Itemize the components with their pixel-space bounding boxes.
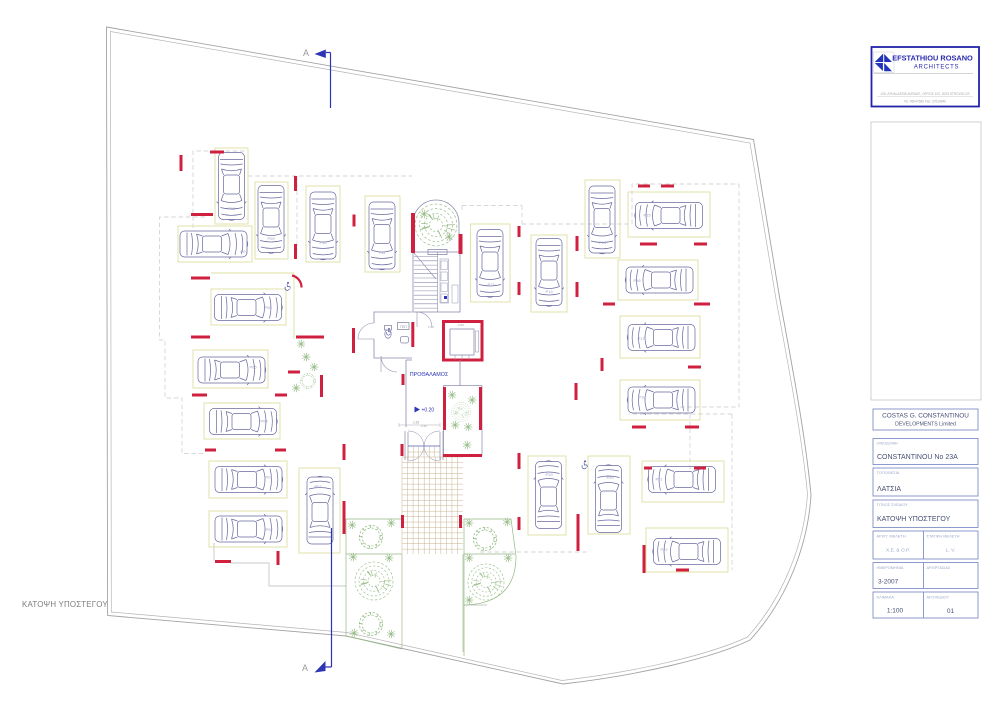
svg-text:P11: P11 (379, 250, 387, 255)
svg-text:ΠΡΟΘΑΛΑΜΟΣ: ΠΡΟΘΑΛΑΜΟΣ (410, 372, 449, 378)
svg-text:P13: P13 (545, 289, 553, 294)
svg-text:Χ.Ε. & Ο.Ρ.: Χ.Ε. & Ο.Ρ. (886, 548, 910, 554)
svg-text:P02: P02 (265, 527, 273, 532)
svg-text:Tel: 99647586 Fax: 22518846: Tel: 99647586 Fax: 22518846 (904, 99, 946, 103)
svg-text:P01: P01 (314, 484, 322, 489)
svg-text:P07: P07 (240, 249, 248, 254)
svg-text:01: 01 (947, 608, 955, 615)
svg-text:ΚΑΤΟΨΗ ΥΠΟΣΤΕΓΟΥ: ΚΑΤΟΨΗ ΥΠΟΣΤΕΓΟΥ (877, 516, 951, 523)
svg-text:P20: P20 (606, 475, 614, 480)
svg-text:ΗΜΕΡΟΜΗΝΙΑ: ΗΜΕΡΟΜΗΝΙΑ (877, 565, 904, 570)
svg-text:ΟΙΚΟΔΟΜΗ: ΟΙΚΟΔΟΜΗ (877, 441, 898, 446)
svg-text:P12: P12 (487, 282, 495, 287)
svg-text:COSTAS G. CONSTANTINOU: COSTAS G. CONSTANTINOU (882, 413, 969, 420)
svg-text:P19: P19 (545, 472, 553, 477)
svg-text:ΤΙΤΛΟΣ ΣΧΕΔΙΟΥ: ΤΙΤΛΟΣ ΣΧΕΔΙΟΥ (877, 502, 909, 507)
svg-text:1.60: 1.60 (428, 325, 434, 329)
svg-text:2.28: 2.28 (413, 421, 419, 425)
svg-text:P21: P21 (655, 477, 663, 482)
svg-text:P14: P14 (599, 240, 607, 245)
svg-text:P05: P05 (249, 365, 257, 370)
svg-text:P04: P04 (260, 419, 268, 424)
svg-text:L. V.: L. V. (946, 548, 955, 554)
svg-text:105, ATHALASSIS AVENUE, OFFICE: 105, ATHALASSIS AVENUE, OFFICE 102, 2025… (880, 92, 969, 96)
svg-text:3-2007: 3-2007 (878, 579, 899, 586)
svg-text:ΚΑΤΟΨΗ ΥΠΟΣΤΕΓΟΥ: ΚΑΤΟΨΗ ΥΠΟΣΤΕΓΟΥ (22, 600, 108, 609)
svg-text:ΑΡ.ΣΧΕΔΙΟΥ: ΑΡ.ΣΧΕΔΙΟΥ (927, 595, 950, 600)
svg-text:ΤΟΠΟΘΕΣΙΑ: ΤΟΠΟΘΕΣΙΑ (877, 470, 900, 475)
svg-text:ΚΛΙΜΑΚΑ: ΚΛΙΜΑΚΑ (877, 595, 895, 600)
svg-text:DEVELOPMENTS Limited: DEVELOPMENTS Limited (895, 422, 956, 428)
svg-text:P10: P10 (319, 240, 327, 245)
svg-text:ΓΕΠ: ΓΕΠ (400, 325, 407, 329)
svg-text:P08: P08 (228, 206, 236, 211)
svg-text:P03: P03 (264, 475, 272, 480)
svg-text:EFSTATHIOU ROSANO: EFSTATHIOU ROSANO (892, 54, 973, 63)
svg-text:ΣΤΑΤΙΚΗ ΜΕΛΕΤΗ: ΣΤΑΤΙΚΗ ΜΕΛΕΤΗ (927, 534, 960, 539)
svg-text:P06: P06 (264, 305, 272, 310)
svg-text:P22: P22 (660, 547, 668, 552)
svg-text:P16: P16 (633, 278, 641, 283)
svg-text:A: A (303, 48, 309, 58)
svg-text:A: A (302, 663, 308, 673)
svg-text:P18: P18 (638, 395, 646, 400)
svg-text:P15: P15 (643, 213, 651, 218)
svg-text:CONSTANTINOU No 23A: CONSTANTINOU No 23A (877, 454, 958, 461)
svg-text:2.20: 2.20 (421, 424, 427, 428)
svg-text:1:100: 1:100 (887, 608, 904, 615)
svg-text:ΛΑΤΣΙΑ: ΛΑΤΣΙΑ (877, 486, 901, 493)
svg-text:ARCHITECTS: ARCHITECTS (914, 65, 959, 71)
svg-text:P17: P17 (637, 336, 645, 341)
svg-text:+0.20: +0.20 (422, 408, 435, 414)
svg-text:ΑΡ.ΕΡΓΑΣΙΑΣ: ΑΡ.ΕΡΓΑΣΙΑΣ (927, 565, 951, 570)
svg-text:P09: P09 (267, 236, 275, 241)
svg-text:2.00: 2.00 (458, 323, 464, 327)
svg-text:ΑΡΧΙΤ. ΜΕΛΕΤΗ: ΑΡΧΙΤ. ΜΕΛΕΤΗ (877, 534, 906, 539)
